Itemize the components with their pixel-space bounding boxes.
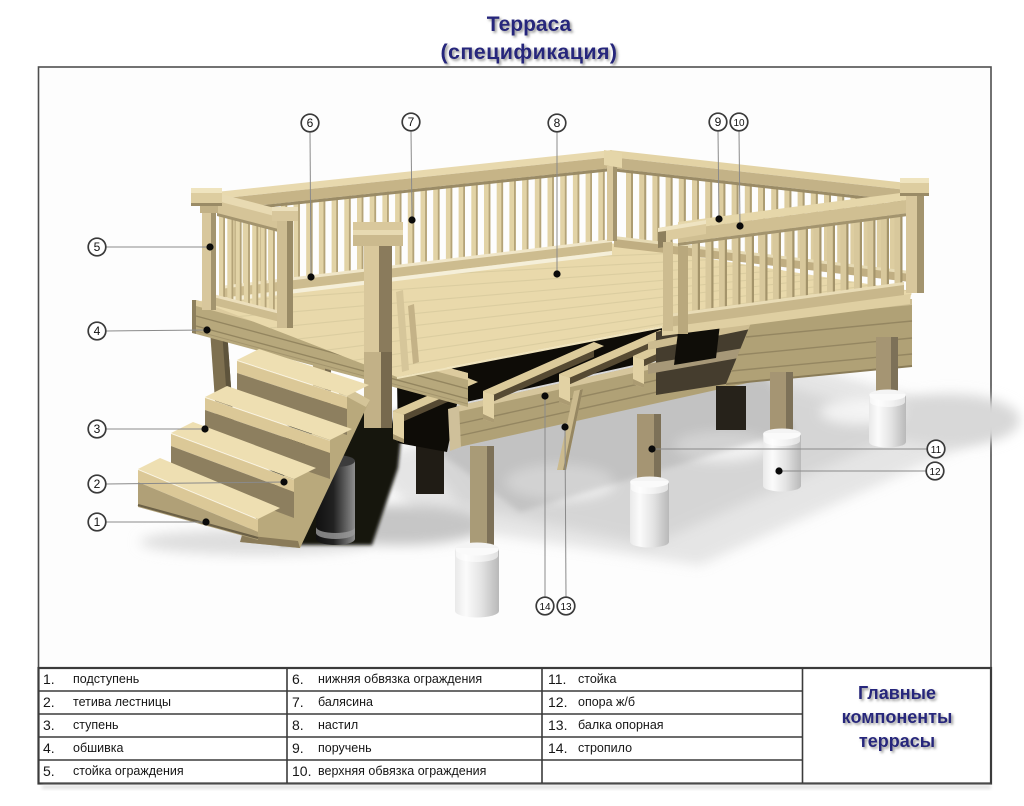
svg-text:1.: 1. xyxy=(43,671,55,687)
svg-text:9.: 9. xyxy=(292,740,304,756)
svg-text:4.: 4. xyxy=(43,740,55,756)
svg-text:стропило: стропило xyxy=(578,741,632,755)
svg-text:13.: 13. xyxy=(548,717,567,733)
svg-text:компоненты: компоненты xyxy=(842,707,953,727)
svg-text:6.: 6. xyxy=(292,671,304,687)
svg-text:14.: 14. xyxy=(548,740,567,756)
svg-text:поручень: поручень xyxy=(318,741,372,755)
svg-text:террасы: террасы xyxy=(859,731,935,751)
svg-text:подступень: подступень xyxy=(73,672,139,686)
svg-text:тетива лестницы: тетива лестницы xyxy=(73,695,171,709)
svg-text:6: 6 xyxy=(307,116,314,130)
svg-text:настил: настил xyxy=(318,718,358,732)
svg-text:нижняя обвязка ограждения: нижняя обвязка ограждения xyxy=(318,672,482,686)
svg-text:12.: 12. xyxy=(548,694,567,710)
svg-text:ступень: ступень xyxy=(73,718,119,732)
svg-text:4: 4 xyxy=(94,324,101,338)
svg-text:8: 8 xyxy=(554,116,561,130)
svg-text:12: 12 xyxy=(929,467,941,478)
svg-text:5: 5 xyxy=(94,240,101,254)
svg-text:10: 10 xyxy=(733,118,745,129)
svg-text:8.: 8. xyxy=(292,717,304,733)
svg-text:3: 3 xyxy=(94,422,101,436)
svg-text:11: 11 xyxy=(931,445,942,456)
svg-text:7.: 7. xyxy=(292,694,304,710)
svg-text:опора ж/б: опора ж/б xyxy=(578,695,635,709)
svg-text:Главные: Главные xyxy=(858,683,936,703)
svg-text:3.: 3. xyxy=(43,717,55,733)
svg-text:14: 14 xyxy=(539,602,551,613)
svg-text:обшивка: обшивка xyxy=(73,741,124,755)
svg-text:2: 2 xyxy=(94,477,101,491)
svg-text:13: 13 xyxy=(560,602,572,613)
svg-text:2.: 2. xyxy=(43,694,55,710)
svg-text:стойка ограждения: стойка ограждения xyxy=(73,764,184,778)
svg-text:балка опорная: балка опорная xyxy=(578,718,664,732)
svg-text:10.: 10. xyxy=(292,763,311,779)
svg-text:11.: 11. xyxy=(548,671,566,687)
svg-text:9: 9 xyxy=(715,115,722,129)
svg-text:7: 7 xyxy=(408,115,415,129)
svg-text:балясина: балясина xyxy=(318,695,373,709)
svg-text:5.: 5. xyxy=(43,763,55,779)
svg-text:Терраса: Терраса xyxy=(487,13,572,36)
svg-text:стойка: стойка xyxy=(578,672,617,686)
svg-text:верхняя обвязка ограждения: верхняя обвязка ограждения xyxy=(318,764,486,778)
svg-text:1: 1 xyxy=(94,515,101,529)
svg-text:(спецификация): (спецификация) xyxy=(441,40,618,64)
